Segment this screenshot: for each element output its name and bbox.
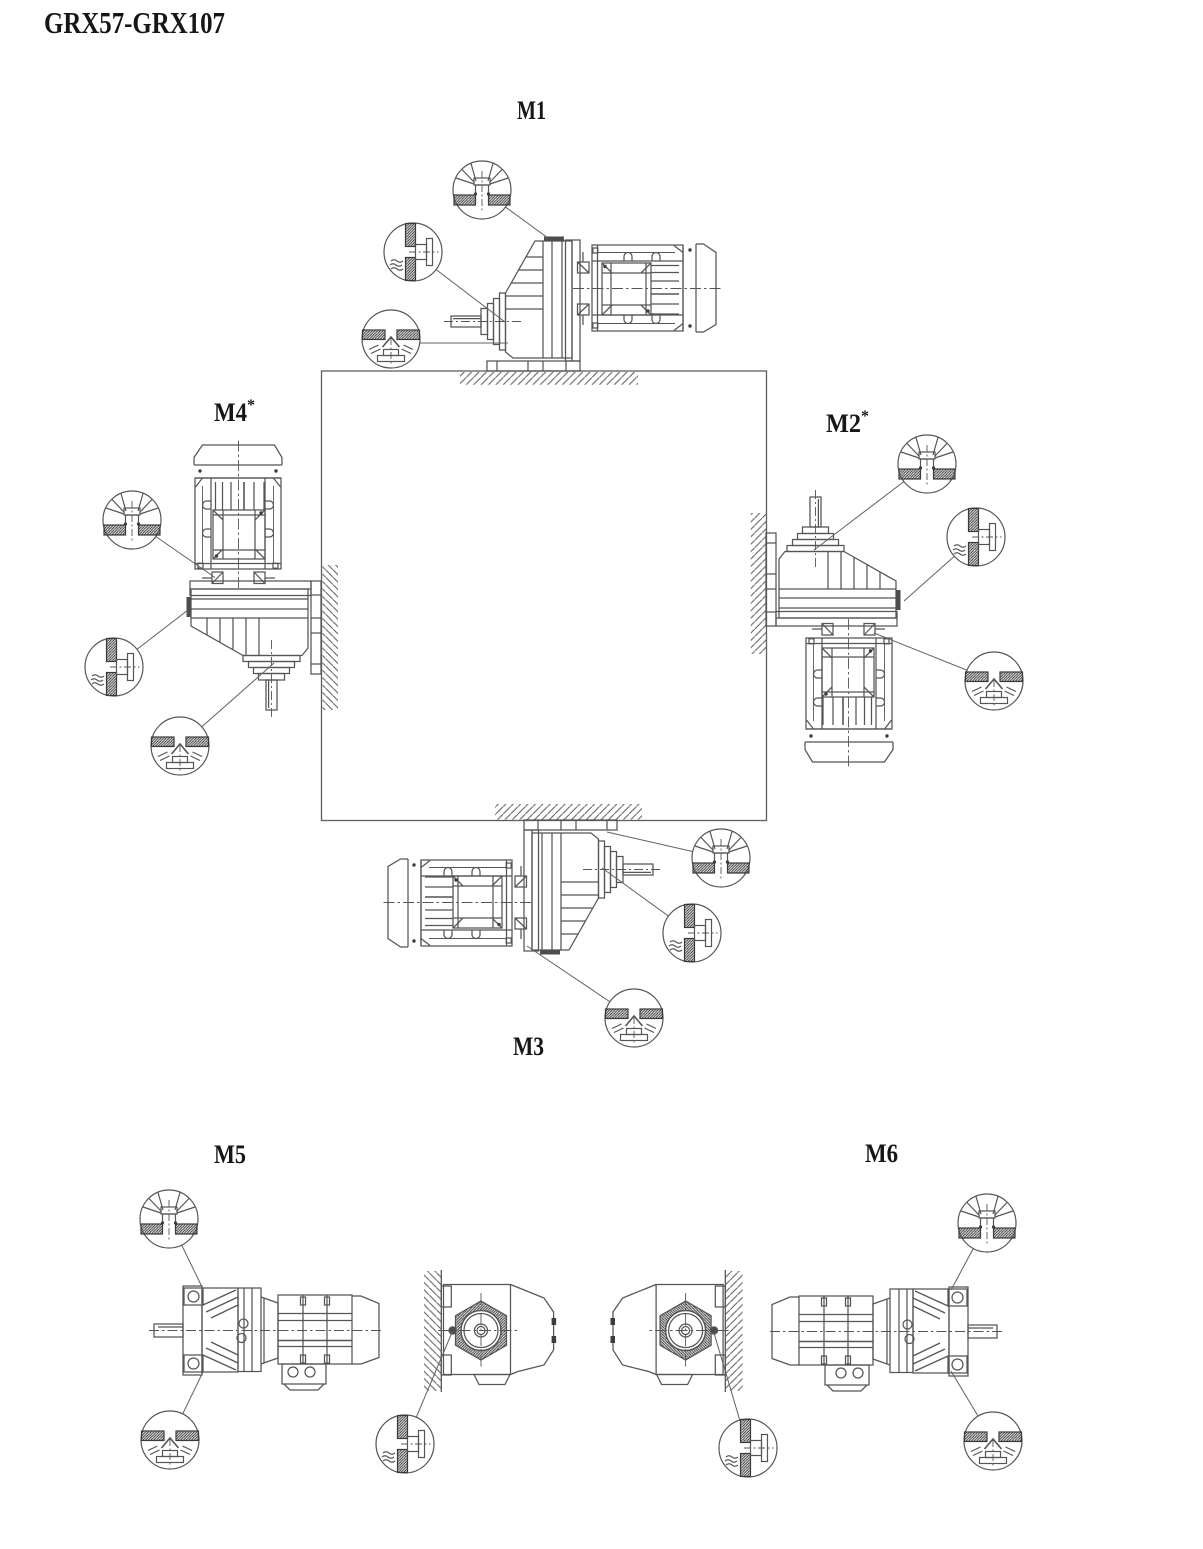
svg-text:M4: M4 <box>214 398 247 427</box>
svg-text:*: * <box>861 408 869 425</box>
svg-text:M1: M1 <box>517 96 546 125</box>
svg-text:M5: M5 <box>214 1140 246 1169</box>
svg-text:*: * <box>247 397 255 414</box>
svg-text:M6: M6 <box>865 1139 898 1168</box>
svg-text:M3: M3 <box>513 1032 544 1061</box>
svg-text:M2: M2 <box>826 409 861 438</box>
svg-text:GRX57-GRX107: GRX57-GRX107 <box>44 5 225 40</box>
